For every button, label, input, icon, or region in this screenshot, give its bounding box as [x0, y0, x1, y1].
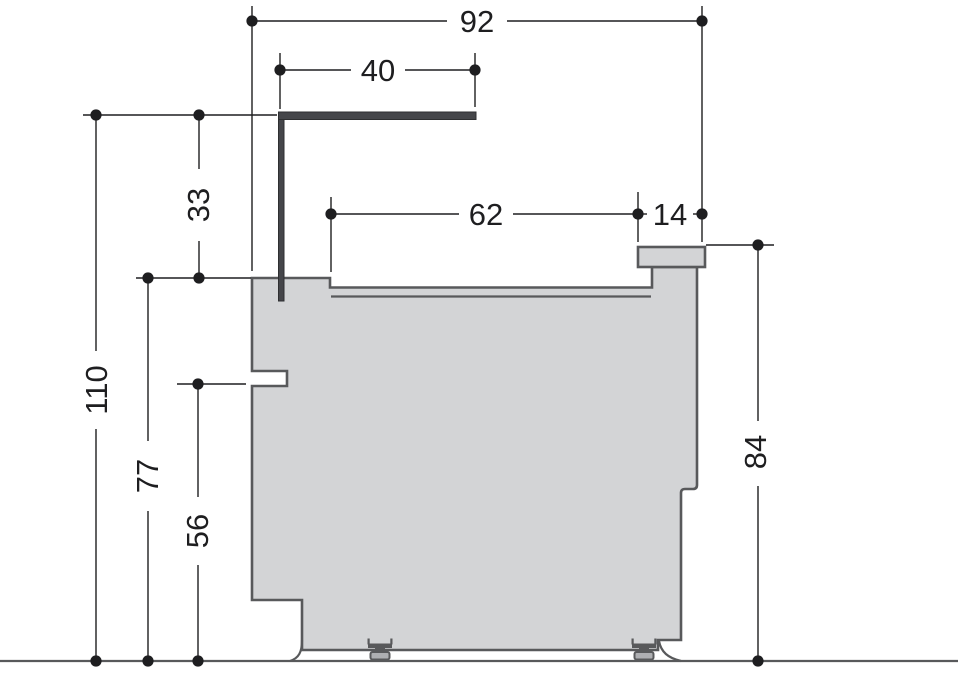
dim-rail-to-body-top: 33	[181, 109, 216, 283]
dimension-dot	[469, 64, 480, 75]
foot-pad	[371, 652, 390, 660]
dimension-dot	[90, 655, 101, 666]
support-rail	[279, 112, 477, 301]
dimension-value: 77	[130, 459, 165, 493]
foot-tick-left	[632, 639, 634, 645]
right-bottom-skirt	[659, 641, 681, 661]
dimension-dot	[142, 272, 153, 283]
dim-notch-height: 56	[180, 378, 215, 666]
rail-horizontal-arm	[279, 112, 477, 120]
dim-cap-width: 14	[638, 197, 708, 232]
foot-tick-left	[368, 639, 370, 645]
dimension-dot	[246, 15, 257, 26]
dimension-dot	[325, 208, 336, 219]
drawing-canvas: 92 40 62 14	[0, 0, 960, 680]
dimension-dot	[696, 15, 707, 26]
dimension-value: 92	[460, 4, 494, 39]
foot-pad	[635, 652, 654, 660]
foot-tick-right	[390, 639, 392, 645]
dimension-dot	[193, 109, 204, 120]
dimension-dot	[90, 109, 101, 120]
technical-drawing: 92 40 62 14	[0, 0, 960, 680]
dim-rail-top-height: 110	[79, 109, 114, 666]
foot-tick-right	[654, 639, 656, 645]
dimension-value: 14	[653, 197, 687, 232]
dimension-dot	[752, 655, 763, 666]
dimension-value: 40	[361, 53, 395, 88]
dim-top-recess-width: 62	[325, 192, 643, 272]
left-bottom-skirt	[290, 640, 302, 661]
dimension-dot	[696, 208, 707, 219]
dim-rail-length: 40	[274, 53, 480, 109]
dimension-value: 62	[469, 197, 503, 232]
foot-bar	[632, 644, 656, 649]
dimension-value: 84	[738, 435, 773, 469]
dimension-dot	[192, 378, 203, 389]
dimension-dot	[274, 64, 285, 75]
appliance-body	[252, 247, 705, 661]
foot-bar	[368, 644, 392, 649]
dimension-value: 56	[180, 514, 215, 548]
dimension-dot	[193, 272, 204, 283]
dimension-value: 110	[79, 365, 114, 414]
rail-vertical-leg	[279, 112, 285, 301]
dimension-dot	[752, 239, 763, 250]
dimension-dot	[142, 655, 153, 666]
dim-cap-top-height: 84	[738, 239, 773, 666]
dim-body-top-height: 77	[130, 272, 165, 666]
dimension-value: 33	[181, 188, 216, 222]
top-cap	[638, 247, 705, 267]
dimension-dot	[192, 655, 203, 666]
body-outline	[252, 267, 697, 650]
